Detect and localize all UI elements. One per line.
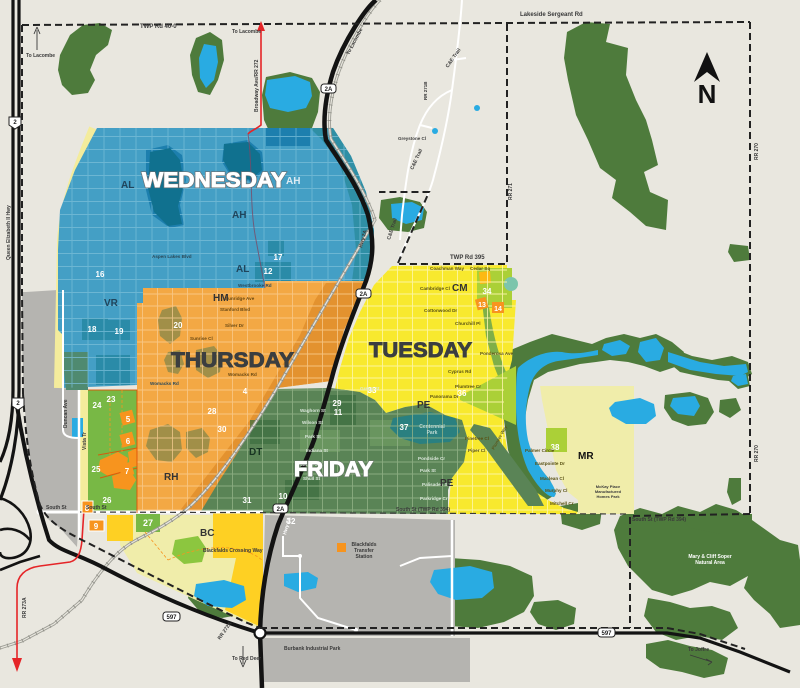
svg-text:South St: South St <box>46 505 67 511</box>
svg-text:Plumtree Cr: Plumtree Cr <box>455 384 481 389</box>
svg-text:Lakeside Sergeant Rd: Lakeside Sergeant Rd <box>520 12 583 18</box>
svg-text:Pinetree Cl: Pinetree Cl <box>465 436 489 441</box>
svg-text:Mitchell Cr: Mitchell Cr <box>550 501 574 506</box>
svg-text:2A: 2A <box>325 87 333 93</box>
svg-text:FRIDAY: FRIDAY <box>294 458 373 481</box>
svg-text:26: 26 <box>103 496 112 505</box>
svg-text:19: 19 <box>115 327 124 336</box>
svg-text:14: 14 <box>494 306 502 313</box>
svg-text:Greystone Cl: Greystone Cl <box>398 136 426 141</box>
svg-text:29: 29 <box>333 399 342 408</box>
svg-text:RR 271: RR 271 <box>508 183 514 200</box>
svg-text:Pondside Cr: Pondside Cr <box>418 456 445 461</box>
svg-text:4: 4 <box>243 387 248 396</box>
svg-text:Murphy Cl: Murphy Cl <box>545 488 567 493</box>
svg-text:Palmer Circle: Palmer Circle <box>525 448 555 453</box>
svg-text:2A: 2A <box>360 292 368 298</box>
svg-text:37: 37 <box>400 423 409 432</box>
svg-text:TUESDAY: TUESDAY <box>369 339 472 362</box>
svg-text:24: 24 <box>93 401 102 410</box>
svg-text:Churchill Pl: Churchill Pl <box>455 321 481 326</box>
svg-text:17: 17 <box>274 253 283 262</box>
svg-text:RR 271B: RR 271B <box>423 81 428 100</box>
svg-text:To Lacombe: To Lacombe <box>232 29 261 35</box>
svg-text:Natural Area: Natural Area <box>695 560 725 566</box>
svg-text:28: 28 <box>208 407 217 416</box>
svg-text:34: 34 <box>483 287 492 296</box>
svg-text:Stanford Blvd: Stanford Blvd <box>220 307 250 312</box>
svg-text:PE: PE <box>440 478 454 489</box>
svg-text:MR: MR <box>578 451 594 462</box>
svg-text:Homes Park: Homes Park <box>596 494 620 499</box>
svg-text:TWP Rd 395: TWP Rd 395 <box>450 255 485 261</box>
svg-text:South St (TWP Rd 394): South St (TWP Rd 394) <box>396 507 450 513</box>
svg-text:Park: Park <box>427 430 438 436</box>
svg-text:AH: AH <box>286 176 300 187</box>
svg-text:THURSDAY: THURSDAY <box>171 349 294 372</box>
svg-text:Silver Dr: Silver Dr <box>225 323 244 328</box>
svg-text:Sunrise Cl: Sunrise Cl <box>190 336 213 341</box>
svg-text:RR 270: RR 270 <box>754 143 760 160</box>
svg-text:Cedar Sq: Cedar Sq <box>470 266 490 271</box>
svg-text:AH: AH <box>232 210 246 221</box>
svg-text:597: 597 <box>601 631 612 637</box>
svg-text:AL: AL <box>236 264 249 275</box>
svg-text:7: 7 <box>125 467 130 476</box>
svg-text:N: N <box>698 79 717 109</box>
svg-text:Parkridge Cr: Parkridge Cr <box>420 496 448 501</box>
svg-text:Waghorn St: Waghorn St <box>300 408 326 413</box>
svg-text:Blackfalds Crossing Way: Blackfalds Crossing Way <box>203 548 263 554</box>
svg-text:31: 31 <box>243 496 252 505</box>
svg-text:12: 12 <box>264 267 273 276</box>
svg-text:Cyprus Rd: Cyprus Rd <box>448 369 471 374</box>
svg-text:Indiana St: Indiana St <box>306 448 328 453</box>
svg-text:To Lacombe: To Lacombe <box>26 53 55 59</box>
svg-text:20: 20 <box>174 321 183 330</box>
svg-text:BC: BC <box>200 528 214 539</box>
svg-text:Sunridge Ave: Sunridge Ave <box>225 296 255 301</box>
svg-text:TWP Rd 40-0: TWP Rd 40-0 <box>140 24 177 30</box>
svg-text:HM: HM <box>213 293 229 304</box>
svg-text:DT: DT <box>249 447 262 458</box>
svg-text:10: 10 <box>279 492 288 501</box>
svg-text:25: 25 <box>92 465 101 474</box>
svg-text:Broadway Ave/RR 272: Broadway Ave/RR 272 <box>254 59 260 112</box>
svg-text:Womacks Rd: Womacks Rd <box>150 381 179 386</box>
svg-text:9: 9 <box>94 522 99 531</box>
svg-text:RR 270: RR 270 <box>754 445 760 462</box>
svg-text:Cottonwood Dr: Cottonwood Dr <box>424 308 457 313</box>
svg-text:Coachman Way: Coachman Way <box>430 266 464 271</box>
svg-text:11: 11 <box>334 408 343 417</box>
svg-text:Vista Tr: Vista Tr <box>82 432 88 450</box>
svg-text:Womacks Rd: Womacks Rd <box>228 372 257 377</box>
svg-text:13: 13 <box>478 302 486 309</box>
svg-text:Aspen Lakes Blvd: Aspen Lakes Blvd <box>152 254 192 259</box>
svg-text:WEDNESDAY: WEDNESDAY <box>142 169 286 192</box>
svg-text:Westbrooke Rd: Westbrooke Rd <box>238 283 272 288</box>
svg-text:597: 597 <box>166 615 177 621</box>
svg-text:Wilson St: Wilson St <box>302 420 323 425</box>
svg-text:Burbank Industrial Park: Burbank Industrial Park <box>284 646 341 652</box>
svg-text:AL: AL <box>121 180 134 191</box>
svg-text:5: 5 <box>126 415 131 424</box>
svg-text:Queen Elizabeth II Hwy: Queen Elizabeth II Hwy <box>6 205 12 260</box>
svg-text:CM: CM <box>452 283 468 294</box>
svg-text:36: 36 <box>458 389 467 398</box>
svg-text:2A: 2A <box>277 507 285 513</box>
svg-text:PE: PE <box>417 400 431 411</box>
svg-text:Eastpointe Dr: Eastpointe Dr <box>535 461 565 466</box>
svg-text:To Joffre: To Joffre <box>688 647 709 653</box>
svg-text:Gregg St: Gregg St <box>360 386 380 391</box>
svg-text:Park St: Park St <box>305 434 321 439</box>
svg-text:27: 27 <box>143 518 153 528</box>
svg-text:Cambridge Cl: Cambridge Cl <box>420 286 450 291</box>
svg-text:6: 6 <box>126 437 131 446</box>
svg-text:VR: VR <box>104 298 119 309</box>
svg-text:RR 273A: RR 273A <box>22 597 28 618</box>
svg-text:South St: South St <box>86 505 107 511</box>
svg-text:Ponderosa Ave: Ponderosa Ave <box>480 351 514 356</box>
svg-text:South St (TWP Rd 394): South St (TWP Rd 394) <box>632 517 686 523</box>
svg-text:Maclean Cl: Maclean Cl <box>540 476 564 481</box>
svg-text:23: 23 <box>107 395 116 404</box>
svg-text:Park St: Park St <box>420 468 436 473</box>
svg-text:Station: Station <box>356 554 373 560</box>
svg-text:Panorama Dr: Panorama Dr <box>430 394 459 399</box>
svg-text:Duncan Ave: Duncan Ave <box>63 399 69 428</box>
svg-text:Piper Cl: Piper Cl <box>468 448 485 453</box>
svg-text:18: 18 <box>88 325 97 334</box>
svg-text:To Red Deer: To Red Deer <box>232 656 261 662</box>
svg-text:30: 30 <box>218 425 227 434</box>
svg-text:16: 16 <box>96 270 105 279</box>
svg-text:RH: RH <box>164 472 178 483</box>
